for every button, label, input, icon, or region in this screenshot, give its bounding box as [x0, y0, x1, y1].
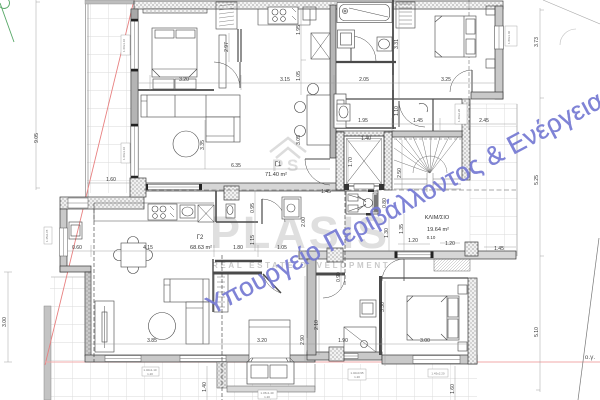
svg-text:S: S — [287, 156, 298, 175]
svg-text:2.05: 2.05 — [359, 77, 369, 83]
svg-text:Γ2: Γ2 — [197, 235, 204, 241]
svg-text:1.45x1.05: 1.45x1.05 — [45, 229, 49, 242]
svg-text:3.20: 3.20 — [257, 338, 267, 344]
svg-text:1.20: 1.20 — [147, 372, 153, 376]
svg-text:3.05: 3.05 — [296, 135, 302, 145]
svg-text:1.60: 1.60 — [450, 384, 456, 394]
svg-text:2.90: 2.90 — [300, 335, 306, 345]
svg-text:1.60x1.10: 1.60x1.10 — [122, 38, 126, 52]
svg-text:9.05: 9.05 — [34, 133, 40, 143]
svg-text:1.15: 1.15 — [250, 235, 256, 245]
svg-text:1.45: 1.45 — [413, 118, 423, 124]
svg-text:0.90: 0.90 — [336, 272, 342, 282]
svg-text:19.64 m²: 19.64 m² — [427, 227, 449, 233]
svg-text:0.10: 0.10 — [427, 235, 436, 240]
svg-text:3.00: 3.00 — [420, 338, 430, 344]
svg-text:68.63 m²: 68.63 m² — [190, 245, 212, 251]
svg-text:2.97: 2.97 — [224, 42, 230, 52]
svg-text:5.25: 5.25 — [534, 175, 540, 185]
svg-text:5.10: 5.10 — [534, 327, 540, 337]
svg-text:2.50: 2.50 — [397, 168, 403, 178]
svg-text:71.40 m²: 71.40 m² — [265, 172, 287, 178]
svg-text:1.45: 1.45 — [494, 246, 504, 252]
svg-text:1.20: 1.20 — [408, 238, 418, 244]
svg-text:2.45: 2.45 — [479, 118, 489, 124]
svg-text:1.10: 1.10 — [394, 106, 400, 116]
svg-text:3.00: 3.00 — [2, 317, 8, 327]
svg-text:4.15: 4.15 — [143, 245, 153, 251]
svg-text:1.40: 1.40 — [361, 136, 371, 142]
svg-text:3.31: 3.31 — [394, 39, 400, 49]
svg-text:1.20: 1.20 — [445, 241, 455, 247]
svg-text:1.80x1.40: 1.80x1.40 — [507, 30, 511, 44]
svg-text:1.40x2.20: 1.40x2.20 — [457, 108, 461, 122]
svg-text:ΚΛΙΜ/ΣΙΟ: ΚΛΙΜ/ΣΙΟ — [425, 215, 450, 221]
svg-text:3.30: 3.30 — [380, 302, 386, 312]
svg-text:0.60: 0.60 — [72, 245, 82, 251]
svg-text:0.95: 0.95 — [250, 203, 256, 213]
svg-text:3.35: 3.35 — [200, 140, 206, 150]
svg-text:Γ1: Γ1 — [275, 162, 282, 168]
svg-text:2.00: 2.00 — [301, 217, 307, 227]
svg-text:3.15: 3.15 — [280, 77, 290, 83]
svg-text:1.60: 1.60 — [106, 177, 116, 183]
svg-text:1.05: 1.05 — [296, 71, 302, 81]
svg-text:1.70: 1.70 — [348, 157, 354, 167]
svg-text:1.90: 1.90 — [338, 338, 348, 344]
svg-text:1.20: 1.20 — [264, 395, 270, 399]
svg-text:6.35: 6.35 — [231, 163, 241, 169]
svg-text:1.95: 1.95 — [296, 25, 302, 35]
svg-text:ο.γ.: ο.γ. — [585, 354, 596, 361]
svg-text:3.85: 3.85 — [147, 338, 157, 344]
svg-text:1.60x1.10: 1.60x1.10 — [122, 146, 126, 160]
svg-text:2.10: 2.10 — [314, 320, 320, 330]
svg-text:3.73: 3.73 — [534, 37, 540, 47]
svg-text:1.80: 1.80 — [233, 245, 243, 251]
svg-text:1.35: 1.35 — [399, 224, 405, 234]
svg-text:3.20: 3.20 — [179, 77, 189, 83]
svg-text:3.25: 3.25 — [441, 77, 451, 83]
svg-text:1.45: 1.45 — [321, 189, 331, 195]
svg-text:1.20: 1.20 — [354, 375, 360, 379]
svg-text:1.95: 1.95 — [358, 118, 368, 124]
svg-text:1.45x2.20: 1.45x2.20 — [431, 372, 445, 376]
svg-text:1.40: 1.40 — [202, 382, 208, 392]
